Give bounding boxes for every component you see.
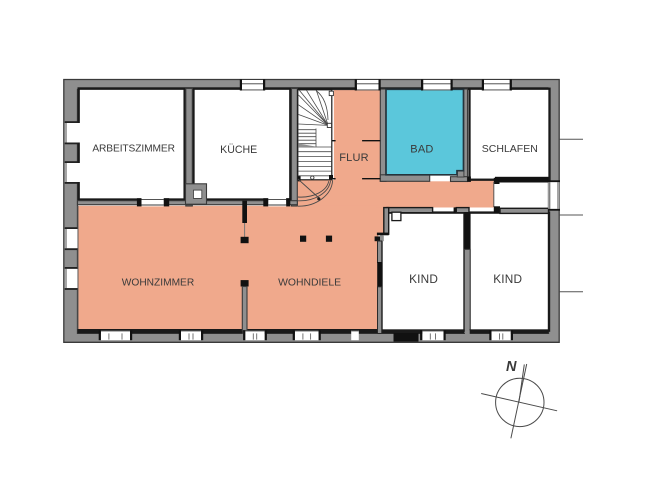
svg-text:KIND: KIND bbox=[409, 272, 438, 286]
svg-text:KIND: KIND bbox=[493, 272, 522, 286]
svg-text:BAD: BAD bbox=[410, 143, 433, 155]
svg-text:KÜCHE: KÜCHE bbox=[220, 144, 257, 156]
svg-text:SCHLAFEN: SCHLAFEN bbox=[482, 143, 538, 155]
svg-text:WOHNDIELE: WOHNDIELE bbox=[278, 277, 341, 288]
svg-text:FLUR: FLUR bbox=[339, 152, 369, 164]
svg-text:N: N bbox=[506, 359, 517, 375]
svg-text:WOHNZIMMER: WOHNZIMMER bbox=[122, 277, 194, 288]
svg-text:ARBEITSZIMMER: ARBEITSZIMMER bbox=[92, 144, 174, 155]
